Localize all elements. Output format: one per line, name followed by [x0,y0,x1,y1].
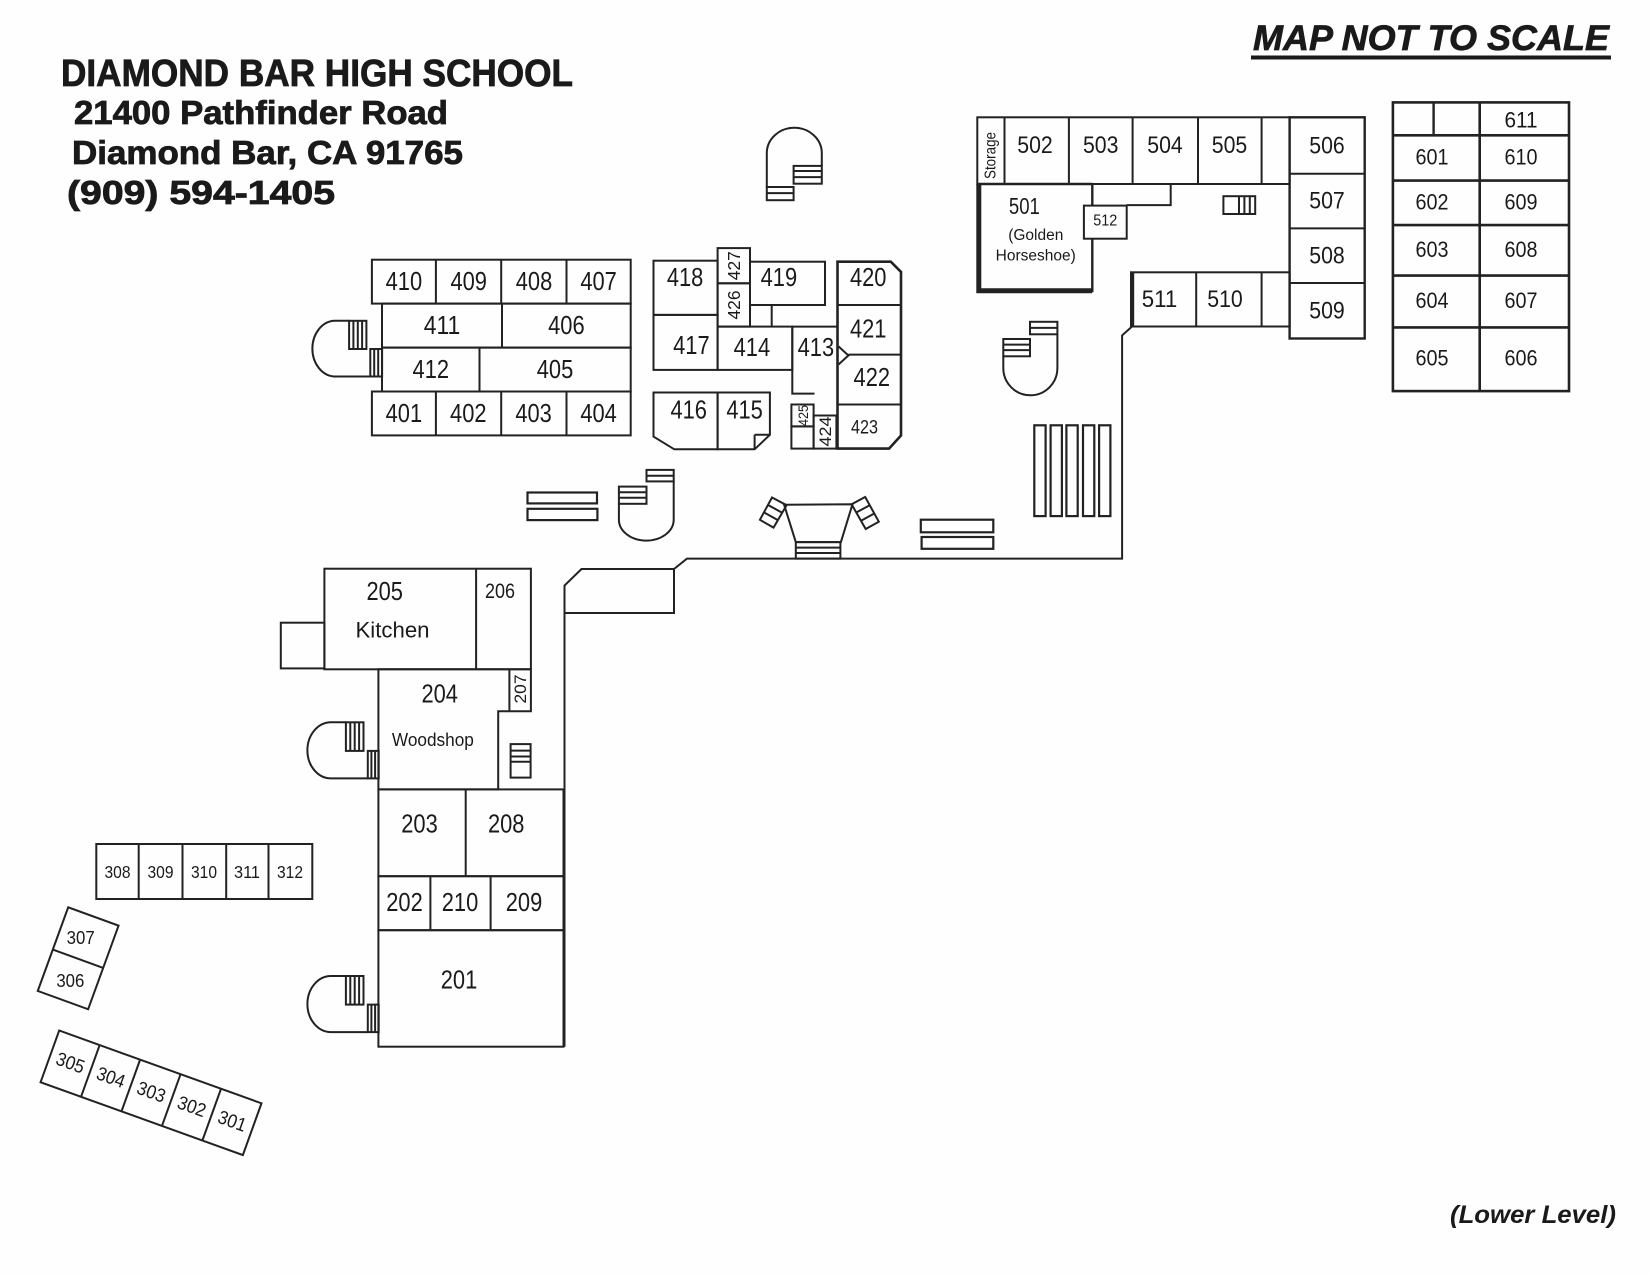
svg-text:312: 312 [277,862,303,882]
svg-text:(Golden: (Golden [1008,227,1063,244]
svg-text:503: 503 [1083,132,1119,159]
svg-text:413: 413 [798,334,835,362]
svg-text:502: 502 [1017,132,1053,159]
svg-text:420: 420 [850,264,887,292]
svg-text:425: 425 [795,405,811,426]
svg-text:308: 308 [105,862,131,882]
svg-text:310: 310 [191,862,217,882]
svg-text:603: 603 [1416,237,1449,262]
svg-text:418: 418 [667,264,704,292]
svg-text:Woodshop: Woodshop [392,730,474,750]
svg-text:204: 204 [421,681,458,709]
svg-text:403: 403 [515,400,552,428]
svg-text:402: 402 [450,400,487,428]
svg-text:424: 424 [816,417,835,447]
svg-text:427: 427 [724,251,744,280]
svg-text:210: 210 [442,889,479,917]
svg-text:508: 508 [1309,243,1345,270]
svg-text:606: 606 [1505,346,1538,371]
svg-text:21400 Pathfinder Road: 21400 Pathfinder Road [74,94,448,131]
svg-text:(Lower Level): (Lower Level) [1450,1201,1616,1229]
svg-text:511: 511 [1142,286,1178,313]
svg-text:309: 309 [148,862,174,882]
svg-text:311: 311 [234,862,260,882]
svg-text:605: 605 [1416,346,1449,371]
svg-text:415: 415 [726,397,763,425]
svg-text:507: 507 [1309,188,1345,215]
svg-text:505: 505 [1212,132,1248,159]
svg-text:419: 419 [761,264,798,292]
svg-text:426: 426 [724,291,744,320]
svg-text:Horseshoe): Horseshoe) [996,247,1076,264]
svg-text:206: 206 [485,580,515,603]
svg-text:MAP NOT TO SCALE: MAP NOT TO SCALE [1253,19,1611,58]
svg-text:Kitchen: Kitchen [356,618,430,643]
svg-text:512: 512 [1093,213,1117,230]
svg-text:306: 306 [56,970,84,991]
svg-text:Diamond Bar, CA 91765: Diamond Bar, CA 91765 [72,134,463,171]
svg-text:509: 509 [1309,298,1345,325]
svg-text:205: 205 [366,578,403,606]
svg-text:423: 423 [851,418,878,439]
svg-text:608: 608 [1505,237,1538,262]
svg-text:421: 421 [850,315,887,343]
svg-text:602: 602 [1416,190,1449,215]
svg-text:405: 405 [537,356,574,384]
svg-text:422: 422 [854,364,891,392]
svg-text:412: 412 [413,356,450,384]
svg-text:408: 408 [516,268,553,296]
svg-text:611: 611 [1505,108,1538,133]
svg-text:(909) 594-1405: (909) 594-1405 [67,174,335,211]
svg-text:410: 410 [386,268,423,296]
svg-text:407: 407 [580,268,617,296]
svg-text:409: 409 [450,268,487,296]
svg-text:610: 610 [1505,145,1538,170]
svg-text:506: 506 [1309,133,1345,160]
svg-text:209: 209 [506,889,543,917]
svg-text:601: 601 [1416,145,1449,170]
svg-text:307: 307 [67,927,95,948]
svg-text:201: 201 [441,967,478,995]
svg-text:401: 401 [386,400,423,428]
svg-text:DIAMOND BAR HIGH SCHOOL: DIAMOND BAR HIGH SCHOOL [61,53,573,95]
svg-text:604: 604 [1416,288,1449,313]
svg-text:510: 510 [1207,286,1243,313]
svg-text:504: 504 [1147,132,1183,159]
svg-text:609: 609 [1505,190,1538,215]
svg-text:406: 406 [548,312,585,340]
svg-text:411: 411 [424,312,461,340]
svg-text:202: 202 [386,889,423,917]
svg-text:607: 607 [1505,288,1538,313]
svg-text:414: 414 [734,334,771,362]
svg-text:Storage: Storage [982,132,999,179]
svg-text:208: 208 [488,811,525,839]
svg-text:501: 501 [1009,193,1040,219]
svg-text:203: 203 [401,811,438,839]
svg-text:404: 404 [580,400,617,428]
svg-text:207: 207 [511,675,530,704]
svg-text:417: 417 [673,332,710,360]
svg-text:416: 416 [670,397,707,425]
